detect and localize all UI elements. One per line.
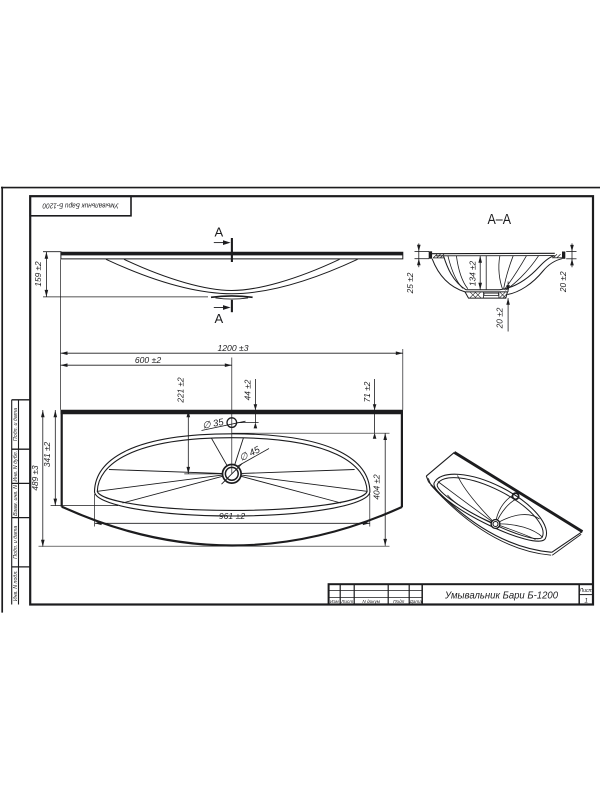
svg-text:25 ±2: 25 ±2 [405, 272, 415, 294]
svg-text:Инв. N подл.: Инв. N подл. [13, 570, 19, 601]
svg-text:Взам. инв. N: Взам. инв. N [13, 485, 19, 516]
svg-text:Подп: Подп [393, 599, 405, 604]
svg-text:Подп. и дата: Подп. и дата [13, 408, 19, 441]
svg-text:134 ±2: 134 ±2 [467, 260, 477, 286]
svg-text:Дата: Дата [409, 599, 423, 604]
svg-text:600 ±2: 600 ±2 [135, 355, 161, 365]
svg-text:N докум: N докум [362, 599, 380, 604]
svg-text:404 ±2: 404 ±2 [371, 474, 381, 500]
svg-text:1200 ±3: 1200 ±3 [217, 343, 248, 353]
svg-text:489 ±3: 489 ±3 [30, 465, 40, 491]
svg-text:Умывальник Бари Б-1200: Умывальник Бари Б-1200 [444, 590, 558, 602]
svg-text:Инв. N дубл.: Инв. N дубл. [13, 451, 19, 482]
svg-text:961 ±2: 961 ±2 [219, 511, 245, 521]
svg-text:Изм: Изм [330, 599, 339, 604]
svg-text:20 ±2: 20 ±2 [558, 271, 568, 293]
svg-text:Лист: Лист [579, 588, 594, 594]
svg-text:44 ±2: 44 ±2 [243, 379, 253, 400]
svg-text:71 ±2: 71 ±2 [362, 381, 372, 402]
svg-text:А–А: А–А [488, 211, 512, 228]
svg-text:221 ±2: 221 ±2 [176, 377, 186, 404]
svg-text:20 ±2: 20 ±2 [494, 307, 504, 329]
svg-text:Подп. и дата: Подп. и дата [13, 526, 19, 559]
svg-text:341 ±2: 341 ±2 [42, 441, 52, 467]
svg-text:159 ±2: 159 ±2 [33, 261, 43, 287]
svg-text:1: 1 [584, 597, 588, 604]
svg-text:Лист: Лист [340, 599, 353, 604]
svg-text:Умывальник Бари Б-1200: Умывальник Бари Б-1200 [43, 202, 120, 211]
svg-text:А: А [214, 311, 223, 326]
svg-text:А: А [214, 225, 223, 240]
